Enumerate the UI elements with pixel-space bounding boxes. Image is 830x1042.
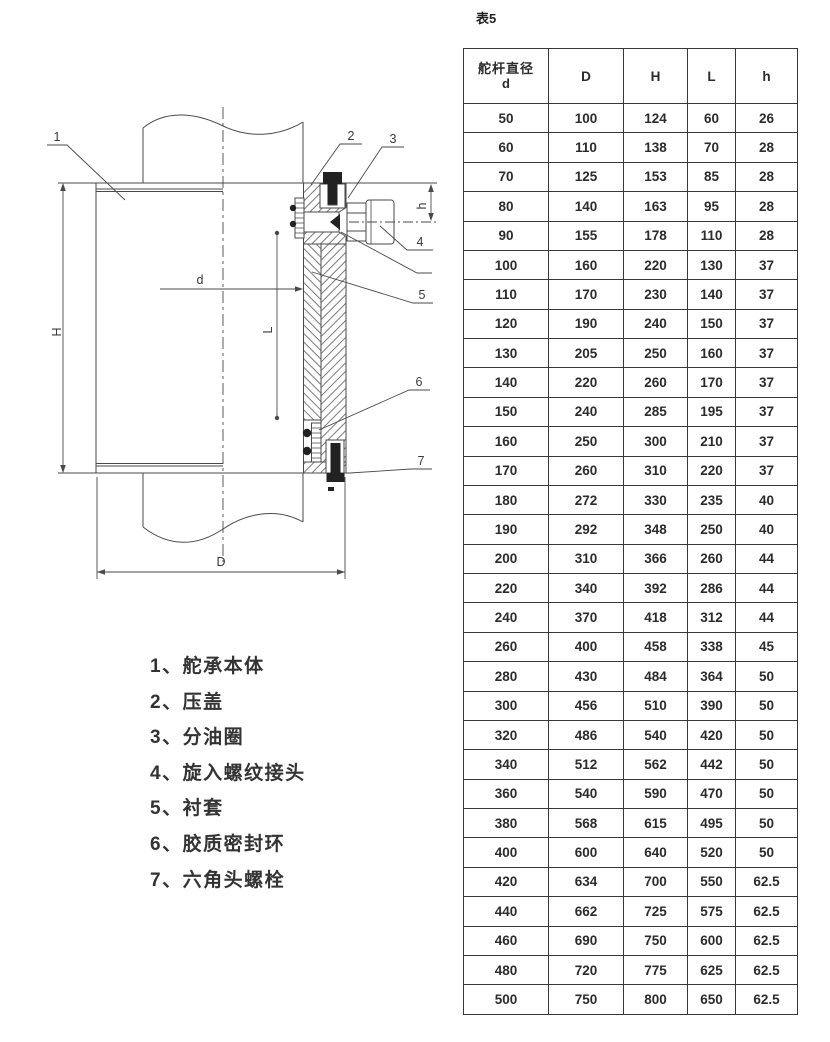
table-row: 34051256244250 xyxy=(464,750,798,779)
table-cell: 124 xyxy=(624,104,688,133)
table-cell: 240 xyxy=(624,309,688,338)
table-cell: 662 xyxy=(549,897,624,926)
table-cell: 750 xyxy=(624,926,688,955)
legend-item: 1、舵承本体 xyxy=(150,649,306,685)
table-row: 42063470055062.5 xyxy=(464,867,798,896)
table-cell: 510 xyxy=(624,691,688,720)
dim-label-L: L xyxy=(261,326,275,333)
header-D: D xyxy=(549,49,624,104)
dim-L xyxy=(275,231,279,420)
table-cell: 110 xyxy=(688,221,736,250)
table-cell: 50 xyxy=(736,750,798,779)
table-cell: 640 xyxy=(624,838,688,867)
table-cell: 272 xyxy=(549,485,624,514)
table-row: 48072077562562.5 xyxy=(464,955,798,984)
table-cell: 320 xyxy=(464,720,549,749)
table-cell: 155 xyxy=(549,221,624,250)
table-cell: 430 xyxy=(549,662,624,691)
table-cell: 37 xyxy=(736,339,798,368)
table-cell: 60 xyxy=(464,133,549,162)
table-cell: 220 xyxy=(549,368,624,397)
table-cell: 440 xyxy=(464,897,549,926)
table-cell: 420 xyxy=(688,720,736,749)
part-label-2: 2 xyxy=(348,129,355,143)
table-cell: 310 xyxy=(624,456,688,485)
table-row: 28043048436450 xyxy=(464,662,798,691)
table-cell: 418 xyxy=(624,603,688,632)
table-cell: 240 xyxy=(464,603,549,632)
table-cell: 160 xyxy=(688,339,736,368)
table-cell: 720 xyxy=(549,955,624,984)
table-cell: 195 xyxy=(688,397,736,426)
table-cell: 600 xyxy=(688,926,736,955)
dim-label-H: H xyxy=(50,327,64,336)
table-cell: 220 xyxy=(464,574,549,603)
legend-item: 3、分油圈 xyxy=(150,720,306,756)
table-cell: 28 xyxy=(736,192,798,221)
table-cell: 110 xyxy=(549,133,624,162)
table-row: 15024028519537 xyxy=(464,397,798,426)
table-cell: 340 xyxy=(464,750,549,779)
table-cell: 330 xyxy=(624,485,688,514)
table-cell: 150 xyxy=(688,309,736,338)
table-cell: 125 xyxy=(549,162,624,191)
table-cell: 460 xyxy=(464,926,549,955)
bushing-hatch xyxy=(304,244,321,420)
table-row: 32048654042050 xyxy=(464,720,798,749)
table-cell: 260 xyxy=(624,368,688,397)
table-row: 50075080065062.5 xyxy=(464,985,798,1015)
hex-bolt xyxy=(326,440,345,491)
table-cell: 62.5 xyxy=(736,867,798,896)
table-cell: 338 xyxy=(688,632,736,661)
seal-rings xyxy=(303,423,321,462)
table-cell: 160 xyxy=(464,427,549,456)
table-row: 40060064052050 xyxy=(464,838,798,867)
dim-h xyxy=(428,184,434,221)
table-cell: 163 xyxy=(624,192,688,221)
table-cell: 512 xyxy=(549,750,624,779)
table-cell: 520 xyxy=(688,838,736,867)
table-cell: 360 xyxy=(464,779,549,808)
table-cell: 310 xyxy=(549,544,624,573)
table-cell: 300 xyxy=(624,427,688,456)
table-cell: 28 xyxy=(736,221,798,250)
header-h: h xyxy=(736,49,798,104)
header-L: L xyxy=(688,49,736,104)
table-cell: 50 xyxy=(736,809,798,838)
table-header: 舵杆直径 d D H L h xyxy=(464,49,798,104)
page: 1 2 3 4 5 6 7 H D d L h 1、舵承本体2、压盖3、分油圈4… xyxy=(0,0,830,1042)
dimension-table: 舵杆直径 d D H L h 5010012460266011013870287… xyxy=(463,48,798,1015)
table-cell: 60 xyxy=(688,104,736,133)
table-cell: 380 xyxy=(464,809,549,838)
table-cell: 170 xyxy=(549,280,624,309)
table-cell: 230 xyxy=(624,280,688,309)
table-cell: 170 xyxy=(688,368,736,397)
table-cell: 700 xyxy=(624,867,688,896)
table-cell: 370 xyxy=(549,603,624,632)
table-cell: 85 xyxy=(688,162,736,191)
table-row: 701251538528 xyxy=(464,162,798,191)
table-cell: 575 xyxy=(688,897,736,926)
oil-ring xyxy=(290,198,304,238)
table-cell: 775 xyxy=(624,955,688,984)
table-cell: 50 xyxy=(736,720,798,749)
table-cell: 210 xyxy=(688,427,736,456)
table-cell: 138 xyxy=(624,133,688,162)
table-cell: 562 xyxy=(624,750,688,779)
section-wall xyxy=(304,183,348,473)
dim-label-D: D xyxy=(216,555,225,569)
table-cell: 178 xyxy=(624,221,688,250)
table-cell: 62.5 xyxy=(736,955,798,984)
gland-hatch-bottom xyxy=(304,232,346,244)
table-row: 19029234825040 xyxy=(464,515,798,544)
table-row: 46069075060062.5 xyxy=(464,926,798,955)
table-cell: 235 xyxy=(688,485,736,514)
table-cell: 40 xyxy=(736,485,798,514)
header-H: H xyxy=(624,49,688,104)
table-cell: 540 xyxy=(549,779,624,808)
table-cell: 130 xyxy=(464,339,549,368)
table-cell: 40 xyxy=(736,515,798,544)
table-cell: 26 xyxy=(736,104,798,133)
table-cell: 260 xyxy=(688,544,736,573)
table-cell: 540 xyxy=(624,720,688,749)
table-cell: 200 xyxy=(464,544,549,573)
table-row: 11017023014037 xyxy=(464,280,798,309)
table-cell: 150 xyxy=(464,397,549,426)
table-cell: 220 xyxy=(688,456,736,485)
table-cell: 37 xyxy=(736,250,798,279)
table-cell: 170 xyxy=(464,456,549,485)
table-row: 26040045833845 xyxy=(464,632,798,661)
table-cell: 62.5 xyxy=(736,985,798,1015)
table-cell: 37 xyxy=(736,280,798,309)
parts-legend: 1、舵承本体2、压盖3、分油圈4、旋入螺纹接头5、衬套6、胶质密封环7、六角头螺… xyxy=(150,649,306,898)
table-cell: 250 xyxy=(549,427,624,456)
table-row: 14022026017037 xyxy=(464,368,798,397)
table-cell: 725 xyxy=(624,897,688,926)
table-cell: 600 xyxy=(549,838,624,867)
table-cell: 500 xyxy=(464,985,549,1015)
table-cell: 442 xyxy=(688,750,736,779)
legend-item: 2、压盖 xyxy=(150,685,306,721)
table-cell: 28 xyxy=(736,133,798,162)
table-cell: 180 xyxy=(464,485,549,514)
table-cell: 486 xyxy=(549,720,624,749)
table-cell: 750 xyxy=(549,985,624,1015)
table-cell: 390 xyxy=(688,691,736,720)
table-cell: 364 xyxy=(688,662,736,691)
table-title: 表5 xyxy=(476,8,496,27)
table-cell: 120 xyxy=(464,309,549,338)
table-cell: 590 xyxy=(624,779,688,808)
table-row: 20031036626044 xyxy=(464,544,798,573)
table-cell: 100 xyxy=(464,250,549,279)
table-cell: 292 xyxy=(549,515,624,544)
table-cell: 625 xyxy=(688,955,736,984)
table-cell: 495 xyxy=(688,809,736,838)
table-cell: 260 xyxy=(549,456,624,485)
table-cell: 50 xyxy=(736,662,798,691)
table-body: 5010012460266011013870287012515385288014… xyxy=(464,104,798,1015)
table-cell: 568 xyxy=(549,809,624,838)
table-row: 801401639528 xyxy=(464,192,798,221)
table-cell: 62.5 xyxy=(736,926,798,955)
table-cell: 260 xyxy=(464,632,549,661)
table-cell: 240 xyxy=(549,397,624,426)
table-cell: 456 xyxy=(549,691,624,720)
table-cell: 650 xyxy=(688,985,736,1015)
table-row: 17026031022037 xyxy=(464,456,798,485)
table-cell: 37 xyxy=(736,427,798,456)
header-col1-line2: d xyxy=(464,76,548,91)
table-cell: 392 xyxy=(624,574,688,603)
table-cell: 37 xyxy=(736,368,798,397)
table-row: 601101387028 xyxy=(464,133,798,162)
table-cell: 70 xyxy=(688,133,736,162)
leader-lines xyxy=(47,144,433,473)
table-row: 22034039228644 xyxy=(464,574,798,603)
table-cell: 340 xyxy=(549,574,624,603)
table-cell: 366 xyxy=(624,544,688,573)
table-cell: 550 xyxy=(688,867,736,896)
table-cell: 420 xyxy=(464,867,549,896)
table-cell: 100 xyxy=(549,104,624,133)
part-label-6: 6 xyxy=(416,375,423,389)
table-cell: 44 xyxy=(736,574,798,603)
table-cell: 110 xyxy=(464,280,549,309)
part-label-7: 7 xyxy=(418,454,425,468)
part-label-3: 3 xyxy=(390,132,397,146)
table-cell: 300 xyxy=(464,691,549,720)
table-cell: 95 xyxy=(688,192,736,221)
table-cell: 140 xyxy=(688,280,736,309)
table-row: 44066272557562.5 xyxy=(464,897,798,926)
table-cell: 190 xyxy=(549,309,624,338)
legend-item: 7、六角头螺栓 xyxy=(150,863,306,899)
header-rudder-stock-diameter: 舵杆直径 d xyxy=(464,49,549,104)
drawing-labels: 1 2 3 4 5 6 7 H D d L h xyxy=(50,129,429,569)
leader-4 xyxy=(380,226,433,250)
table-cell: 37 xyxy=(736,456,798,485)
table-cell: 70 xyxy=(464,162,549,191)
table-cell: 220 xyxy=(624,250,688,279)
drawing-lines xyxy=(47,107,437,579)
table-row: 18027233023540 xyxy=(464,485,798,514)
table-cell: 312 xyxy=(688,603,736,632)
dim-label-h: h xyxy=(415,202,429,209)
dim-label-d: d xyxy=(197,273,204,287)
table-cell: 50 xyxy=(736,691,798,720)
part-label-5: 5 xyxy=(419,288,426,302)
body-wall-hatch xyxy=(321,244,346,462)
table-cell: 615 xyxy=(624,809,688,838)
table-cell: 140 xyxy=(464,368,549,397)
legend-item: 5、衬套 xyxy=(150,791,306,827)
table-cell: 28 xyxy=(736,162,798,191)
header-col1-line1: 舵杆直径 xyxy=(464,61,548,76)
table-cell: 400 xyxy=(549,632,624,661)
table-row: 10016022013037 xyxy=(464,250,798,279)
table-row: 12019024015037 xyxy=(464,309,798,338)
table-cell: 140 xyxy=(549,192,624,221)
table-cell: 250 xyxy=(624,339,688,368)
table-cell: 50 xyxy=(464,104,549,133)
table-cell: 400 xyxy=(464,838,549,867)
gland-bolt xyxy=(320,172,345,208)
table-cell: 45 xyxy=(736,632,798,661)
table-cell: 458 xyxy=(624,632,688,661)
table-cell: 690 xyxy=(549,926,624,955)
table-cell: 634 xyxy=(549,867,624,896)
table-cell: 37 xyxy=(736,397,798,426)
table-cell: 286 xyxy=(688,574,736,603)
table-cell: 250 xyxy=(688,515,736,544)
legend-item: 6、胶质密封环 xyxy=(150,827,306,863)
table-cell: 62.5 xyxy=(736,897,798,926)
table-cell: 480 xyxy=(464,955,549,984)
table-cell: 44 xyxy=(736,544,798,573)
table-cell: 280 xyxy=(464,662,549,691)
table-cell: 348 xyxy=(624,515,688,544)
table-row: 36054059047050 xyxy=(464,779,798,808)
table-row: 9015517811028 xyxy=(464,221,798,250)
table-cell: 37 xyxy=(736,309,798,338)
table-cell: 50 xyxy=(736,838,798,867)
table-cell: 285 xyxy=(624,397,688,426)
table-row: 24037041831244 xyxy=(464,603,798,632)
legend-item: 4、旋入螺纹接头 xyxy=(150,756,306,792)
dim-d xyxy=(160,286,303,292)
table-row: 501001246026 xyxy=(464,104,798,133)
table-row: 38056861549550 xyxy=(464,809,798,838)
table-row: 30045651039050 xyxy=(464,691,798,720)
technical-drawing: 1 2 3 4 5 6 7 H D d L h xyxy=(0,0,470,640)
table-cell: 800 xyxy=(624,985,688,1015)
table-cell: 205 xyxy=(549,339,624,368)
leader-3 xyxy=(348,147,404,198)
table-row: 13020525016037 xyxy=(464,339,798,368)
part-label-1: 1 xyxy=(54,130,61,144)
table-cell: 130 xyxy=(688,250,736,279)
table-cell: 190 xyxy=(464,515,549,544)
table-cell: 80 xyxy=(464,192,549,221)
table-cell: 44 xyxy=(736,603,798,632)
table-cell: 160 xyxy=(549,250,624,279)
leader-7 xyxy=(350,469,432,473)
table-cell: 153 xyxy=(624,162,688,191)
part-label-4: 4 xyxy=(417,235,424,249)
table-cell: 50 xyxy=(736,779,798,808)
table-cell: 470 xyxy=(688,779,736,808)
table-row: 16025030021037 xyxy=(464,427,798,456)
table-cell: 484 xyxy=(624,662,688,691)
table-cell: 90 xyxy=(464,221,549,250)
